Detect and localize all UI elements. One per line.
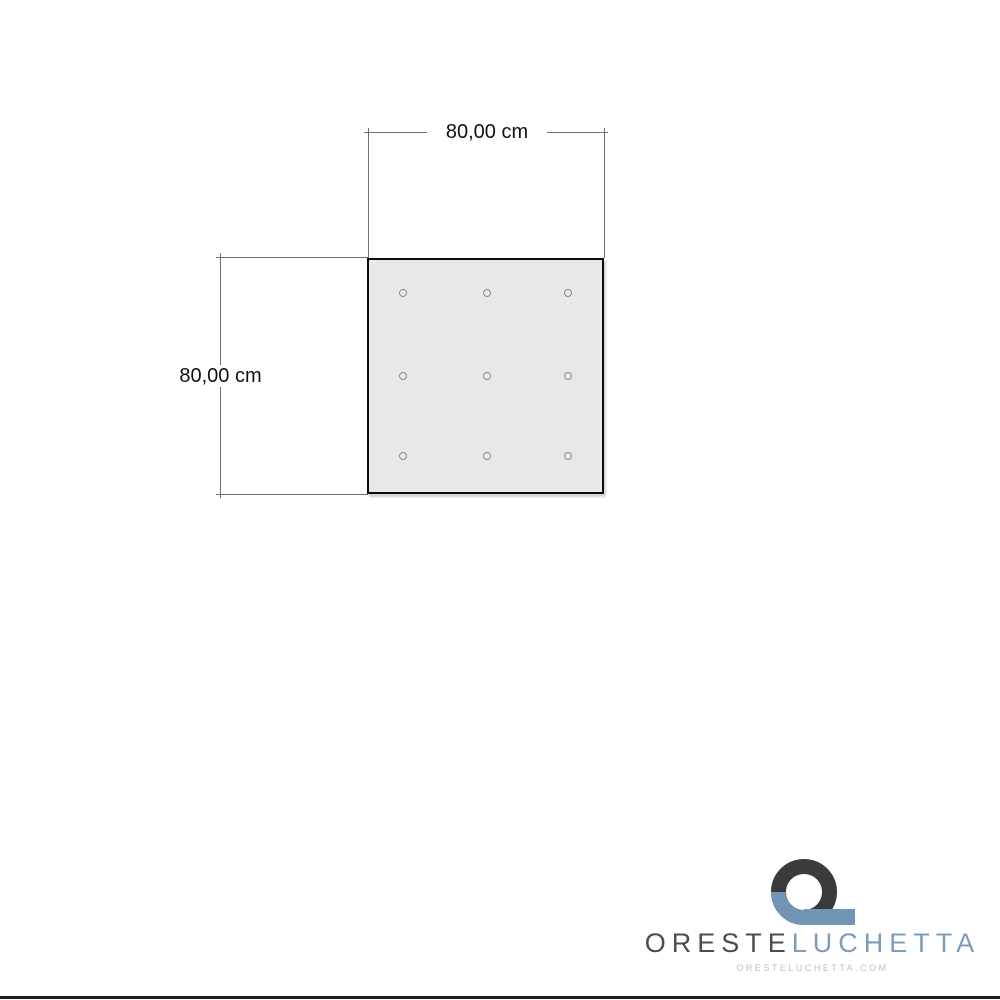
hole-marker [399, 289, 407, 297]
sheet-bottom-border [0, 996, 1000, 999]
brand-name: ORESTELUCHETTA [640, 930, 985, 957]
hole-marker [564, 289, 572, 297]
width-dimension-extension-left [368, 128, 369, 258]
logo-bar [804, 909, 855, 925]
hole-marker [483, 372, 491, 380]
hole-marker [399, 452, 407, 460]
hole-marker [564, 372, 572, 380]
width-dimension-extension-right [604, 128, 605, 258]
hole-marker [399, 372, 407, 380]
hole-marker [564, 452, 572, 460]
brand-name-primary: ORESTE [645, 928, 792, 958]
brand-name-secondary: LUCHETTA [792, 928, 981, 958]
width-dimension-label: 80,00 cm [427, 121, 547, 143]
brand-logo: ORESTELUCHETTA ORESTELUCHETTA.COM [640, 857, 985, 973]
logo-ring-blue-arc [778, 892, 804, 918]
drawing-sheet: 80,00 cm 80,00 cm ORESTELUCHETTA ORESTEL… [0, 0, 1000, 1000]
hole-marker [483, 289, 491, 297]
brand-logo-icon [769, 857, 857, 927]
hole-marker [483, 452, 491, 460]
height-dimension-extension-bottom [216, 494, 368, 495]
brand-website-url: ORESTELUCHETTA.COM [640, 963, 985, 973]
height-dimension-label: 80,00 cm [170, 365, 271, 387]
panel-face [367, 258, 604, 494]
height-dimension-extension-top [216, 257, 368, 258]
